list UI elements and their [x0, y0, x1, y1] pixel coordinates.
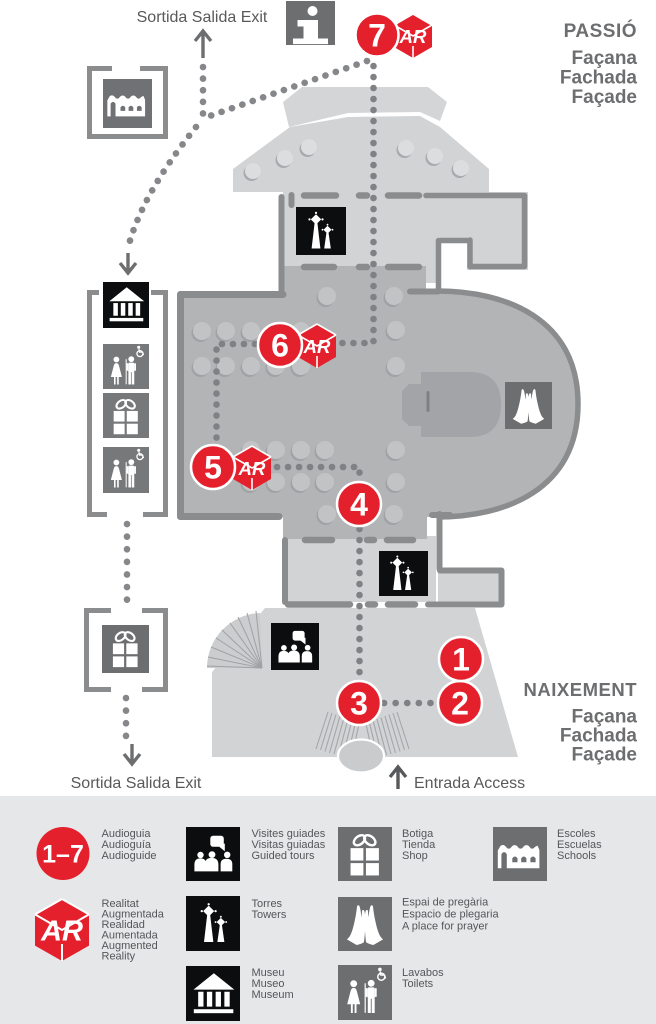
- svg-text:Fachada: Fachada: [560, 726, 638, 747]
- svg-text:Façade: Façade: [572, 745, 637, 766]
- svg-text:7: 7: [368, 18, 386, 54]
- svg-text:Sortida Salida Exit: Sortida Salida Exit: [71, 775, 202, 792]
- svg-text:6: 6: [271, 328, 289, 364]
- svg-text:A place for prayer: A place for prayer: [402, 921, 489, 933]
- svg-text:Fachada: Fachada: [560, 68, 638, 89]
- svg-text:Façana: Façana: [572, 48, 638, 69]
- svg-text:PASSIÓ: PASSIÓ: [564, 20, 637, 42]
- svg-text:1: 1: [452, 642, 470, 678]
- svg-text:Sortida Salida Exit: Sortida Salida Exit: [137, 9, 268, 26]
- svg-text:4: 4: [350, 487, 368, 523]
- svg-text:Façade: Façade: [572, 87, 637, 108]
- svg-text:Espacio de plegaria: Espacio de plegaria: [402, 909, 500, 921]
- svg-text:Guided tours: Guided tours: [252, 850, 315, 862]
- svg-text:Reality: Reality: [102, 951, 136, 963]
- svg-text:Shop: Shop: [402, 850, 428, 862]
- svg-text:5: 5: [204, 450, 222, 486]
- svg-text:NAIXEMENT: NAIXEMENT: [524, 679, 638, 700]
- svg-text:Toilets: Toilets: [402, 978, 434, 990]
- svg-text:Espai de pregària: Espai de pregària: [402, 897, 489, 909]
- svg-text:1–7: 1–7: [42, 841, 84, 869]
- svg-text:Towers: Towers: [252, 909, 287, 921]
- svg-text:Entrada Access: Entrada Access: [414, 775, 525, 792]
- svg-text:3: 3: [350, 686, 368, 722]
- svg-text:2: 2: [451, 686, 469, 722]
- svg-text:Schools: Schools: [557, 850, 597, 862]
- svg-text:Audioguide: Audioguide: [102, 850, 157, 862]
- svg-text:Façana: Façana: [572, 707, 638, 728]
- svg-text:Museum: Museum: [252, 989, 294, 1001]
